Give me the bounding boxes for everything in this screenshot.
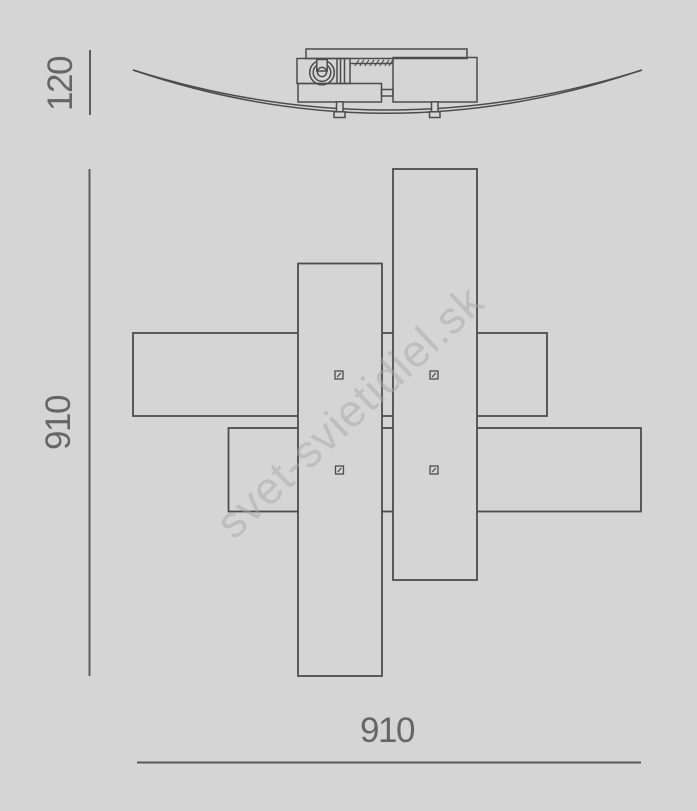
plan-view — [133, 169, 641, 676]
glass-clip-right-foot — [430, 112, 441, 118]
glass-clip-left-stem — [337, 102, 344, 112]
dimension-label-width: 910 — [360, 711, 414, 751]
dimension-label-depth: 910 — [39, 396, 79, 450]
technical-drawing-canvas: 120 910 910 svet-svietidiel.sk — [0, 0, 697, 811]
front-view — [133, 49, 642, 118]
connector-bracket — [382, 90, 394, 97]
glass-clip-right-stem — [432, 102, 439, 112]
dimension-label-height: 120 — [41, 57, 81, 111]
driver-box-left — [298, 84, 382, 103]
driver-box-right — [393, 58, 477, 103]
glass-clip-left-foot — [334, 112, 345, 118]
glass-diffuser-curve-inner — [133, 70, 642, 113]
